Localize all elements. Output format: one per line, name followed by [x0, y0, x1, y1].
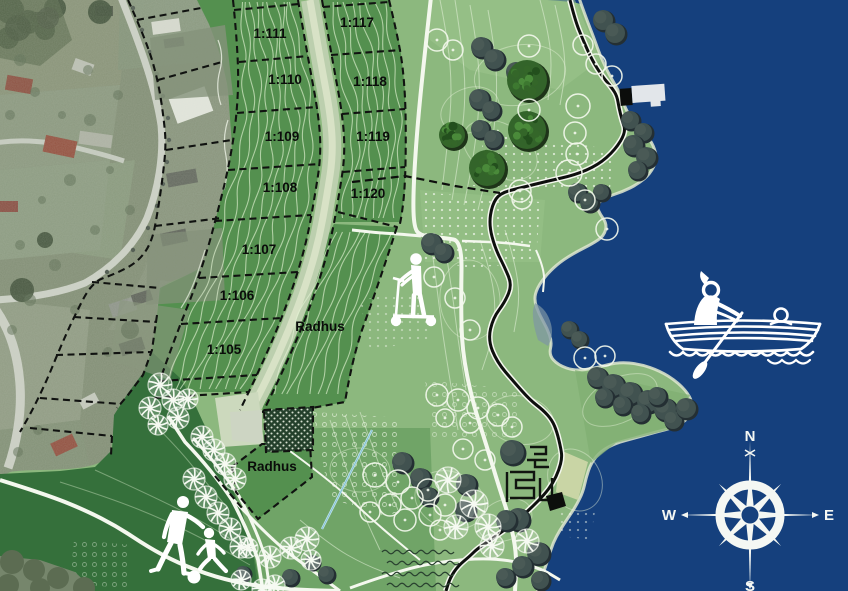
svg-text:N: N: [745, 428, 756, 445]
svg-text:1:105: 1:105: [207, 342, 242, 357]
svg-text:1:110: 1:110: [268, 72, 302, 87]
svg-text:1:117: 1:117: [340, 15, 374, 30]
svg-text:1:107: 1:107: [242, 242, 277, 257]
svg-text:Radhus: Radhus: [295, 319, 345, 334]
svg-text:Radhus: Radhus: [247, 459, 297, 474]
svg-text:W: W: [662, 507, 677, 524]
svg-text:1:120: 1:120: [351, 186, 386, 201]
svg-text:1:106: 1:106: [220, 288, 255, 303]
svg-text:1:118: 1:118: [353, 74, 387, 89]
svg-text:1:108: 1:108: [263, 180, 298, 195]
svg-text:S: S: [745, 578, 755, 591]
svg-text:1:109: 1:109: [265, 129, 300, 144]
svg-text:1:119: 1:119: [356, 129, 390, 144]
svg-text:E: E: [824, 507, 834, 524]
svg-text:1:111: 1:111: [253, 26, 287, 41]
